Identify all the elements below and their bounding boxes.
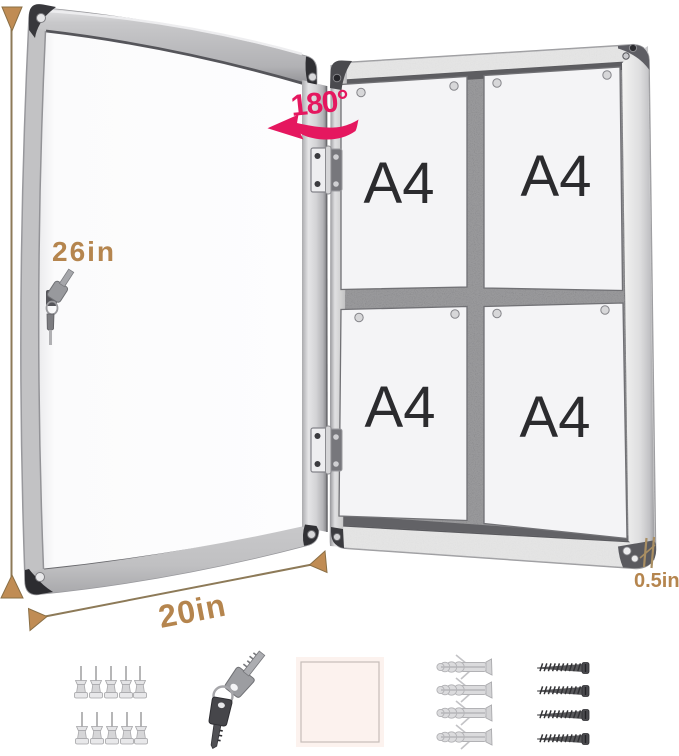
svg-text:180°: 180° (289, 84, 350, 123)
svg-text:A4: A4 (365, 375, 436, 440)
svg-text:A4: A4 (521, 144, 592, 209)
svg-text:A4: A4 (364, 151, 435, 216)
svg-text:0.5in: 0.5in (634, 570, 679, 592)
svg-text:A4: A4 (520, 385, 591, 450)
svg-text:26in: 26in (52, 236, 116, 267)
